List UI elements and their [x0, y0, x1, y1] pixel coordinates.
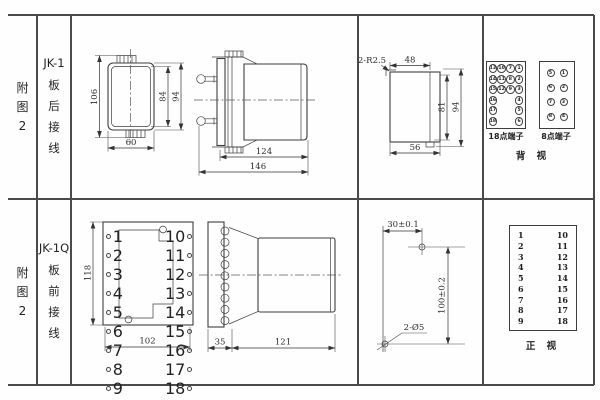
- table-number-2: 2: [518, 241, 524, 251]
- front-table-right: 101112131415161718: [557, 230, 568, 326]
- dim-label-holes: 2-Ø5: [404, 322, 425, 333]
- terminal-empty: [497, 117, 506, 126]
- row-index-top: 附图2: [8, 15, 37, 199]
- figure-index-label: 附图2: [16, 264, 28, 321]
- dim-label-102: 102: [139, 337, 155, 347]
- model-label-jk1q: JK-1Q: [39, 241, 69, 255]
- terminal-label-9: 9: [106, 379, 123, 398]
- terminal-label-3: 3: [106, 265, 123, 284]
- table-number-4: 4: [518, 262, 524, 272]
- jk1q-drill-view: 30±0.1 100±0.2 2-Ø5: [377, 220, 465, 352]
- terminal-circle-7: 7: [547, 98, 555, 106]
- terminal-empty: [506, 117, 515, 126]
- jk1-side-view: 124 146: [194, 51, 316, 176]
- row-model-top: JK-1 板后接线: [37, 15, 71, 199]
- jk1-front-view: 106 84 94 60: [90, 49, 184, 152]
- table-number-8: 8: [518, 305, 524, 315]
- terminal-label-1: 1: [106, 227, 123, 246]
- terminal-circle-17: 17: [489, 106, 498, 115]
- terminal-circle-15: 15: [489, 85, 498, 94]
- terminal-label-10: 10: [165, 227, 192, 246]
- table-number-9: 9: [518, 316, 524, 326]
- table-number-16: 16: [557, 295, 568, 305]
- terminal-circle-6: 6: [515, 117, 524, 126]
- terminal-circle-3: 3: [515, 85, 524, 94]
- terminal-circle-8: 8: [547, 113, 555, 121]
- dim-label-100: 100±0.2: [438, 277, 448, 314]
- terminal-label-16: 16: [165, 341, 192, 360]
- terminal-grid-8: 51627384: [539, 61, 575, 129]
- table-number-11: 11: [557, 241, 568, 251]
- row-index-bottom: 附图2: [8, 199, 37, 385]
- table-number-18: 18: [557, 316, 568, 326]
- table-number-12: 12: [557, 252, 568, 262]
- table-number-15: 15: [557, 284, 568, 294]
- jk1q-right-terminals: 101112131415161718: [165, 227, 192, 322]
- terminal-label-15: 15: [165, 322, 192, 341]
- terminal-grid-18: 131071141182151293164175186: [486, 61, 526, 129]
- terminal-label-13: 13: [165, 284, 192, 303]
- table-number-3: 3: [518, 252, 524, 262]
- dim-label-60: 60: [126, 138, 137, 148]
- row-model-bottom: JK-1Q 板前接线: [37, 199, 71, 385]
- terminal-circle-18: 18: [489, 117, 498, 126]
- terminal-18-label: 18点端子: [480, 131, 532, 142]
- dim-label-106: 106: [90, 89, 100, 105]
- terminal-label-6: 6: [106, 322, 123, 341]
- figure-index-label: 附图2: [16, 79, 28, 136]
- dim-label-118: 118: [84, 265, 94, 281]
- terminal-circle-8: 8: [506, 75, 515, 84]
- terminal-8-label: 8点端子: [533, 131, 579, 142]
- front-terminal-table: 123456789 101112131415161718: [509, 225, 577, 331]
- terminal-circle-5: 5: [547, 69, 555, 77]
- table-number-7: 7: [518, 295, 524, 305]
- wiring-label-front: 板前接线: [48, 260, 60, 344]
- terminal-label-2: 2: [106, 246, 123, 265]
- dim-label-146: 146: [250, 162, 266, 172]
- dim-label-121: 121: [275, 338, 291, 348]
- dim-label-radius: 2-R2.5: [358, 56, 386, 66]
- terminal-circle-14: 14: [489, 75, 498, 84]
- table-number-5: 5: [518, 273, 524, 283]
- terminal-empty: [506, 96, 515, 105]
- dim-label-81: 81: [438, 102, 448, 113]
- model-label-jk1: JK-1: [43, 56, 64, 70]
- terminal-empty: [497, 96, 506, 105]
- terminal-label-11: 11: [165, 246, 192, 265]
- terminal-label-7: 7: [106, 341, 123, 360]
- terminal-circle-2: 2: [560, 84, 568, 92]
- dim-label-30: 30±0.1: [387, 220, 418, 230]
- terminal-label-5: 5: [106, 303, 123, 322]
- terminal-circle-9: 9: [506, 85, 515, 94]
- terminal-circle-10: 10: [497, 64, 506, 73]
- terminal-empty: [506, 106, 515, 115]
- wiring-label-back: 板后接线: [48, 75, 60, 159]
- terminal-circle-3: 3: [560, 98, 568, 106]
- table-number-13: 13: [557, 262, 568, 272]
- terminal-circle-2: 2: [515, 75, 524, 84]
- terminal-circle-4: 4: [515, 96, 524, 105]
- table-number-14: 14: [557, 273, 568, 283]
- drawing-sheet: 106 84 94 60: [0, 0, 600, 400]
- dim-label-56: 56: [410, 143, 421, 153]
- terminal-circle-6: 6: [547, 84, 555, 92]
- terminal-label-17: 17: [165, 360, 192, 379]
- table-number-6: 6: [518, 284, 524, 294]
- terminal-label-12: 12: [165, 265, 192, 284]
- table-number-1: 1: [518, 230, 524, 240]
- terminal-circle-1: 1: [560, 69, 568, 77]
- terminal-circle-11: 11: [497, 75, 506, 84]
- terminal-label-4: 4: [106, 284, 123, 303]
- dim-label-48: 48: [405, 56, 416, 66]
- terminal-label-18: 18: [165, 379, 192, 398]
- terminal-circle-5: 5: [515, 106, 524, 115]
- dim-label-124: 124: [256, 147, 272, 157]
- terminal-circle-4: 4: [560, 113, 568, 121]
- terminal-label-14: 14: [165, 303, 192, 322]
- jk1q-left-terminals: 123456789: [106, 227, 123, 322]
- terminal-empty: [497, 106, 506, 115]
- dim-label-94: 94: [172, 91, 182, 102]
- terminal-circle-1: 1: [515, 64, 524, 73]
- dim-label-84: 84: [159, 91, 169, 102]
- terminal-circle-12: 12: [497, 85, 506, 94]
- dim-label-94-cutout: 94: [452, 102, 462, 113]
- jk1-cutout-view: 48 2-R2.5 81 94 56: [358, 56, 464, 157]
- back-view-label: 背 视: [502, 148, 564, 162]
- terminal-circle-13: 13: [489, 64, 498, 73]
- table-number-10: 10: [557, 230, 568, 240]
- table-number-17: 17: [557, 305, 568, 315]
- terminal-label-8: 8: [106, 360, 123, 379]
- dim-label-35: 35: [215, 338, 226, 348]
- terminal-circle-16: 16: [489, 96, 498, 105]
- jk1q-side-view: 35 121: [199, 222, 343, 352]
- front-table-left: 123456789: [518, 230, 524, 326]
- terminal-circle-7: 7: [506, 64, 515, 73]
- front-view-label: 正 视: [509, 338, 577, 352]
